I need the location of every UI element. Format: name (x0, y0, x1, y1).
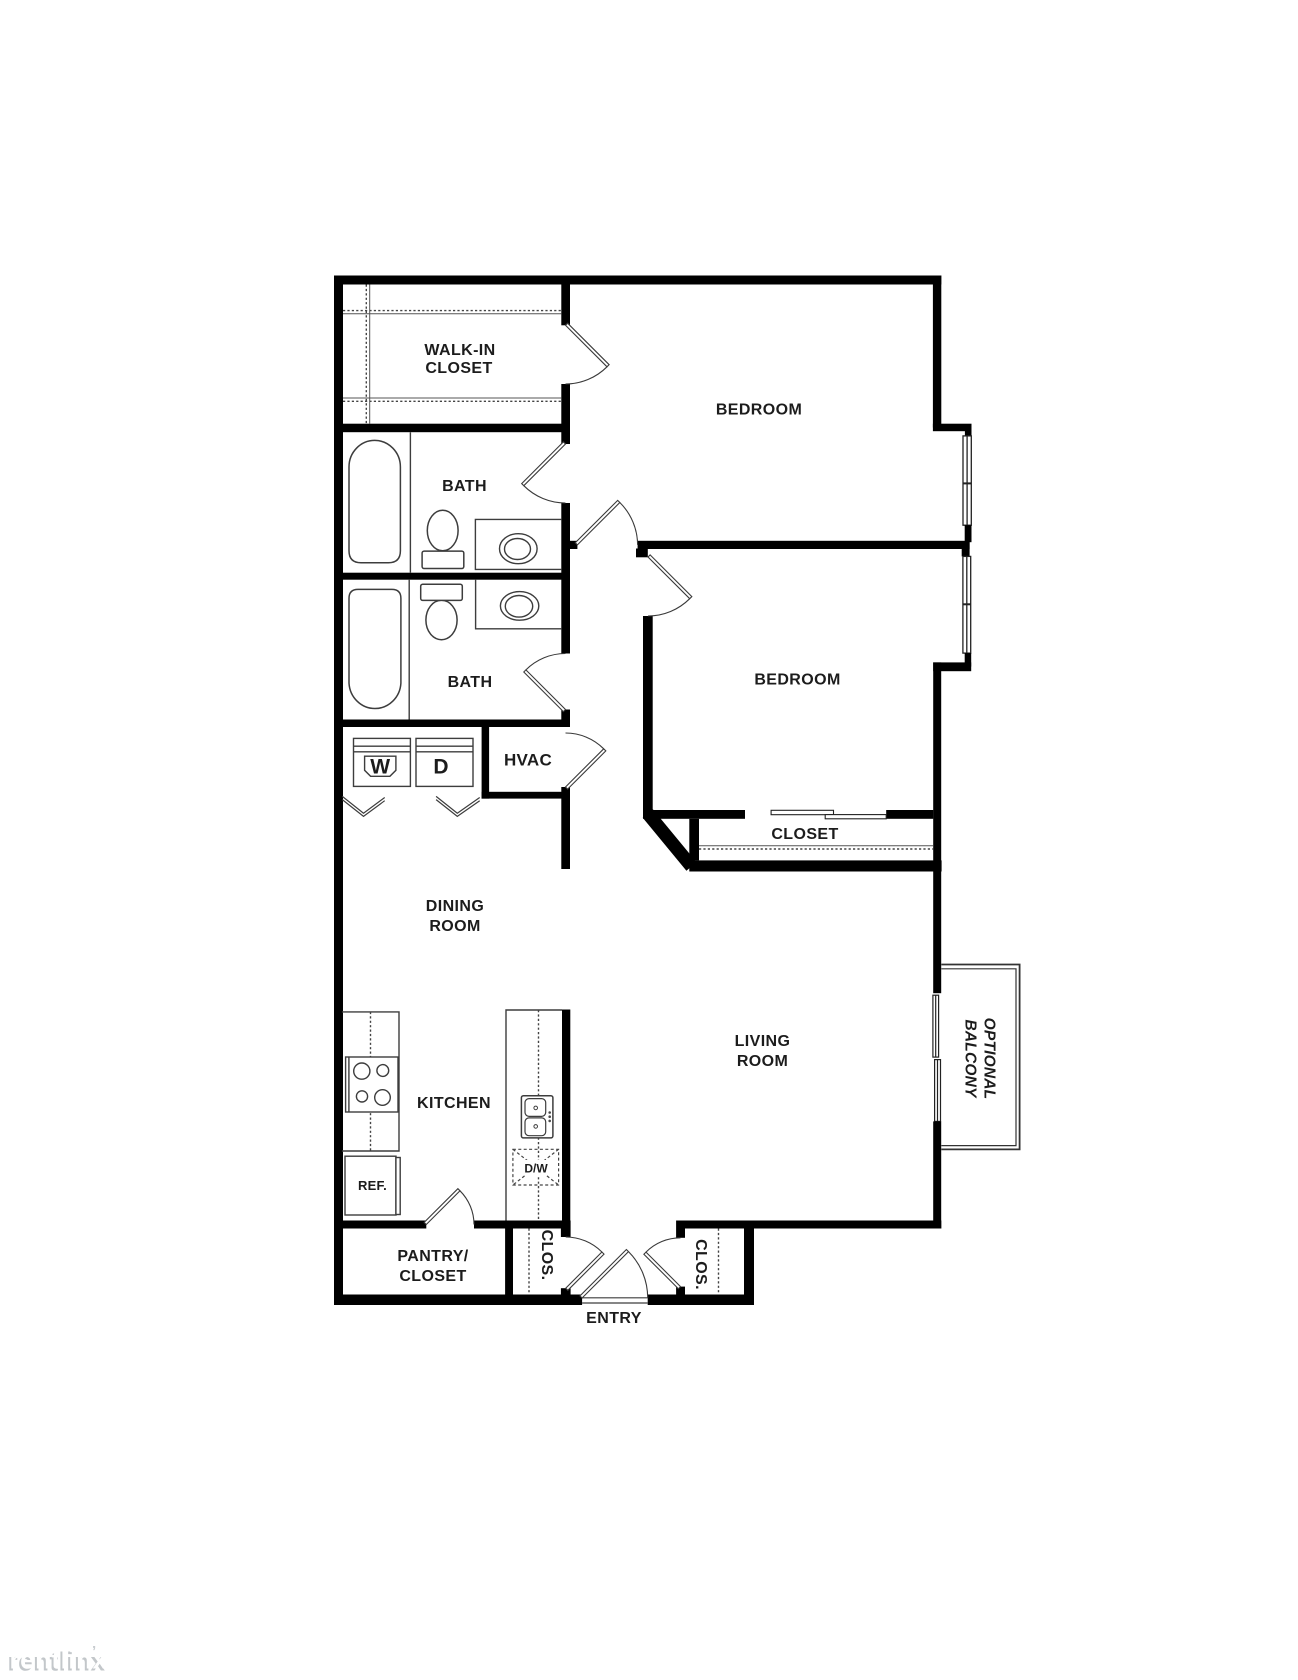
svg-text:’: ’ (92, 1643, 97, 1660)
svg-text:BATH: BATH (448, 674, 493, 691)
svg-text:OPTIONAL: OPTIONAL (981, 1018, 998, 1100)
svg-text:BEDROOM: BEDROOM (716, 402, 802, 419)
svg-text:CLOS.: CLOS. (692, 1239, 709, 1290)
svg-text:ROOM: ROOM (737, 1053, 788, 1070)
svg-text:KITCHEN: KITCHEN (417, 1095, 491, 1112)
svg-text:BEDROOM: BEDROOM (754, 672, 840, 689)
svg-text:PANTRY/: PANTRY/ (397, 1248, 468, 1265)
svg-text:LIVING: LIVING (735, 1033, 791, 1050)
svg-text:D/W: D/W (524, 1162, 548, 1176)
svg-text:CLOSET: CLOSET (771, 826, 838, 843)
svg-text:ROOM: ROOM (429, 918, 480, 935)
svg-text:CLOSET: CLOSET (399, 1268, 466, 1285)
svg-text:REF.: REF. (358, 1178, 387, 1193)
svg-text:W: W (370, 756, 390, 779)
svg-text:CLOS.: CLOS. (538, 1230, 555, 1281)
svg-text:CLOSET: CLOSET (425, 360, 492, 377)
svg-text:DINING: DINING (426, 898, 484, 915)
svg-text:D: D (433, 756, 448, 779)
svg-text:BATH: BATH (442, 478, 487, 495)
svg-text:BALCONY: BALCONY (962, 1019, 979, 1098)
svg-text:ENTRY: ENTRY (586, 1310, 642, 1327)
svg-text:HVAC: HVAC (504, 751, 552, 770)
svg-text:WALK-IN: WALK-IN (424, 342, 495, 359)
